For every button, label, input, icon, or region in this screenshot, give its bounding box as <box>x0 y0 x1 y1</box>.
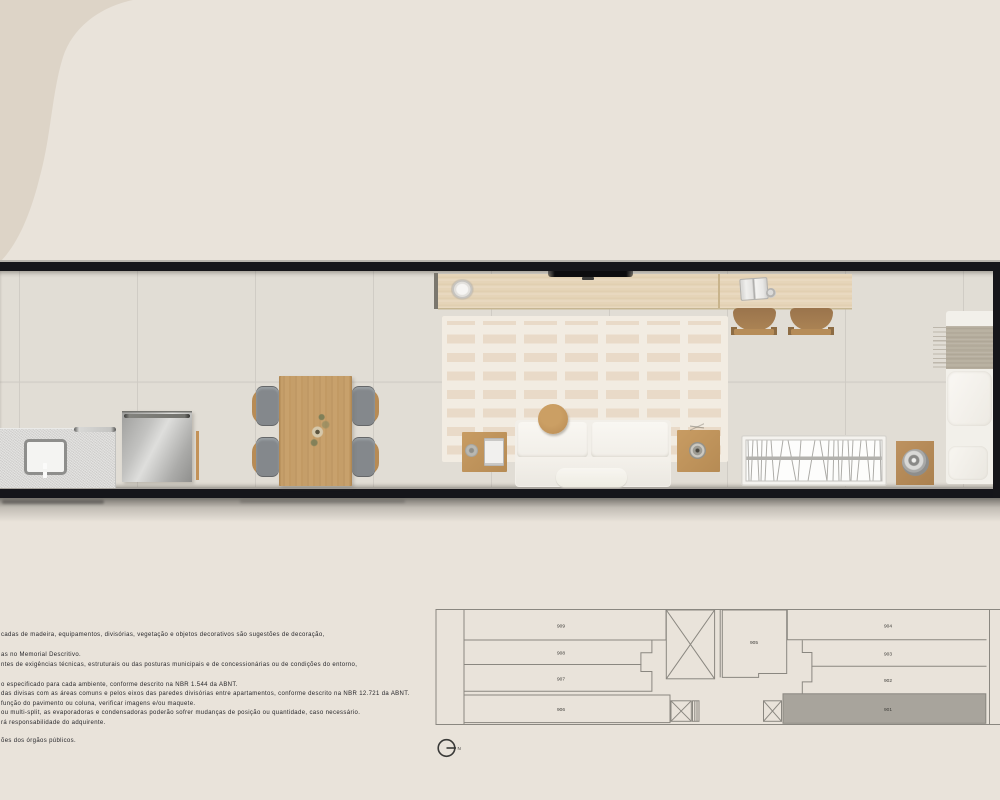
svg-text:N: N <box>458 746 461 751</box>
svg-text:906: 906 <box>557 707 565 713</box>
svg-text:908: 908 <box>557 651 565 657</box>
svg-text:905: 905 <box>750 640 758 646</box>
svg-text:909: 909 <box>557 624 565 630</box>
svg-text:903: 903 <box>884 652 892 658</box>
svg-text:904: 904 <box>884 624 892 630</box>
svg-text:907: 907 <box>557 677 565 683</box>
svg-text:902: 902 <box>884 678 892 684</box>
svg-text:901: 901 <box>884 707 892 713</box>
